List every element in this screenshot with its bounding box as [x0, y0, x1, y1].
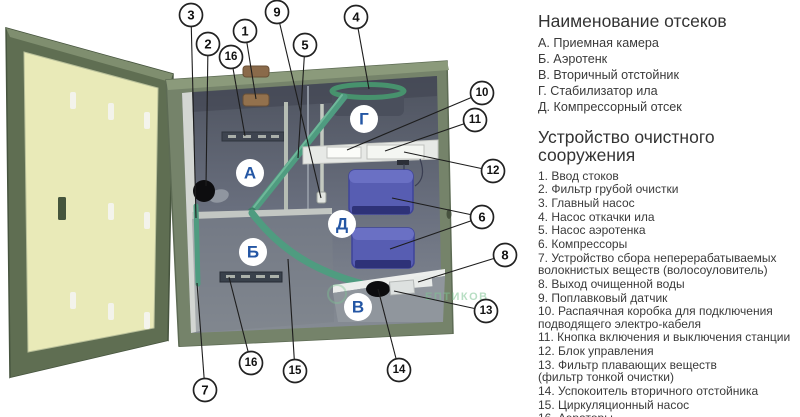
compartment-item-d: Д. Компрессорный отсек — [538, 101, 796, 115]
callout-8: 8 — [494, 244, 517, 267]
svg-text:Б: Б — [247, 243, 259, 262]
callout-16-top: 16 — [220, 46, 243, 69]
treatment-unit-diagram: ЕПТИКОВ А Г Д Б В — [0, 0, 530, 417]
callout-4: 4 — [345, 6, 368, 29]
callout-15: 15 — [284, 360, 307, 383]
compartments-list: А. Приемная камера Б. Аэротенк В. Вторич… — [538, 37, 796, 115]
device-item-6: 6. Компрессоры — [538, 238, 796, 251]
svg-text:11: 11 — [469, 114, 482, 126]
svg-text:4: 4 — [352, 10, 360, 25]
compartment-label-g: Г — [350, 105, 378, 133]
compartments-section-title: Наименование отсеков — [538, 12, 796, 30]
svg-text:15: 15 — [289, 365, 302, 377]
device-item-13: 13. Фильтр плавающих веществ (фильтр тон… — [538, 359, 796, 384]
svg-text:9: 9 — [273, 5, 280, 20]
door — [6, 28, 173, 378]
device-item-10: 10. Распаячная коробка для подключения п… — [538, 305, 796, 330]
junction-box — [327, 147, 361, 158]
svg-text:10: 10 — [476, 87, 489, 99]
device-item-14: 14. Успокоитель вторичного отстойника — [538, 385, 796, 398]
compartment-item-b: Б. Аэротенк — [538, 53, 796, 67]
callout-1: 1 — [234, 20, 257, 43]
device-item-5: 5. Насос аэротенка — [538, 224, 796, 237]
callout-9: 9 — [266, 1, 289, 24]
inlet-cap — [243, 66, 269, 77]
device-item-3: 3. Главный насос — [538, 197, 796, 210]
door-handle-slot — [58, 197, 66, 220]
svg-text:16: 16 — [245, 357, 258, 369]
svg-text:1: 1 — [241, 24, 248, 39]
svg-text:12: 12 — [487, 165, 500, 177]
callout-6: 6 — [471, 206, 494, 229]
svg-text:16: 16 — [225, 51, 238, 63]
svg-text:В: В — [352, 298, 364, 317]
float-sensor — [317, 192, 326, 203]
callout-2: 2 — [197, 33, 220, 56]
compartment-label-d: Д — [328, 210, 356, 238]
compartment-item-a: А. Приемная камера — [538, 37, 796, 51]
svg-text:Г: Г — [359, 110, 369, 129]
svg-text:14: 14 — [393, 364, 406, 376]
device-item-16: 16. Аэраторы — [538, 412, 796, 417]
callout-14: 14 — [388, 359, 411, 382]
device-item-9: 9. Поплавковый датчик — [538, 292, 796, 305]
svg-text:7: 7 — [201, 383, 208, 398]
compartment-label-v: В — [344, 293, 372, 321]
device-item-15: 15. Циркуляционный насос — [538, 399, 796, 412]
svg-text:2: 2 — [204, 37, 211, 52]
callout-12: 12 — [482, 160, 505, 183]
callout-11: 11 — [464, 109, 487, 132]
svg-text:А: А — [244, 164, 256, 183]
door-panel — [24, 52, 158, 352]
callout-3: 3 — [180, 4, 203, 27]
device-item-7: 7. Устройство сбора неперерабатываемых в… — [538, 252, 796, 277]
page: ЕПТИКОВ А Г Д Б В — [0, 0, 800, 417]
device-section-title: Устройство очистного сооружения — [538, 128, 796, 164]
svg-text:3: 3 — [187, 8, 194, 23]
svg-text:8: 8 — [501, 248, 508, 263]
compressor-2 — [352, 228, 414, 268]
device-item-2: 2. Фильтр грубой очистки — [538, 183, 796, 196]
compartment-label-b: Б — [239, 238, 267, 266]
device-list: 1. Ввод стоков 2. Фильтр грубой очистки … — [538, 170, 796, 417]
compartment-item-v: В. Вторичный отстойник — [538, 69, 796, 83]
callout-5: 5 — [294, 34, 317, 57]
legend-panel: Наименование отсеков А. Приемная камера … — [538, 8, 796, 417]
callout-7: 7 — [194, 379, 217, 402]
callout-16-bottom: 16 — [240, 352, 263, 375]
compartment-label-a: А — [236, 159, 264, 187]
device-item-11: 11. Кнопка включения и выключения станци… — [538, 331, 796, 344]
device-item-8: 8. Выход очищенной воды — [538, 278, 796, 291]
compartment-item-g: Г. Стабилизатор ила — [538, 85, 796, 99]
device-item-12: 12. Блок управления — [538, 345, 796, 358]
callout-10: 10 — [471, 82, 494, 105]
callout-13: 13 — [475, 300, 498, 323]
device-item-1: 1. Ввод стоков — [538, 170, 796, 183]
outlet-port — [414, 275, 433, 288]
shelf-connector — [397, 160, 409, 165]
compressor-1 — [349, 170, 413, 214]
svg-text:Д: Д — [336, 215, 348, 234]
svg-text:6: 6 — [478, 210, 485, 225]
svg-text:13: 13 — [480, 305, 493, 317]
svg-text:5: 5 — [301, 38, 308, 53]
aerator-a — [222, 132, 284, 141]
device-item-4: 4. Насос откачки ила — [538, 211, 796, 224]
